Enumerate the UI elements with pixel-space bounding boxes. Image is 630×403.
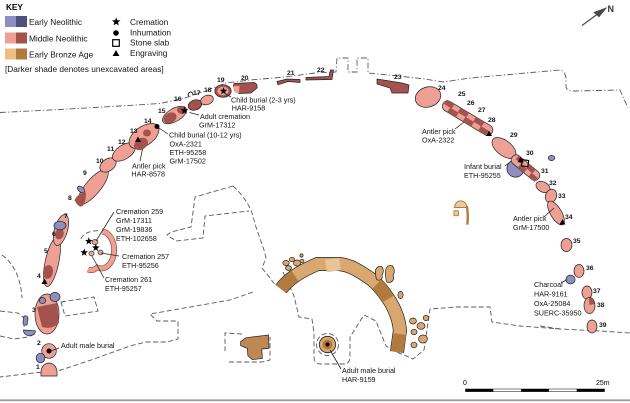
svg-text:Engraving: Engraving — [130, 48, 168, 58]
svg-text:17: 17 — [193, 90, 201, 97]
svg-text:ETH-95258: ETH-95258 — [170, 148, 207, 157]
svg-text:24: 24 — [438, 85, 446, 92]
svg-text:Child burial (10-12 yrs): Child burial (10-12 yrs) — [169, 131, 242, 140]
svg-text:ETH-95256: ETH-95256 — [122, 261, 159, 270]
svg-text:ETH-102658: ETH-102658 — [116, 234, 157, 243]
svg-text:9: 9 — [83, 170, 87, 177]
svg-text:Cremation 257: Cremation 257 — [122, 252, 169, 261]
svg-text:35: 35 — [573, 238, 581, 245]
svg-text:8: 8 — [68, 195, 72, 202]
svg-text:HAR-9161: HAR-9161 — [534, 290, 568, 299]
svg-text:Antler pick: Antler pick — [513, 214, 547, 223]
svg-text:14: 14 — [144, 118, 152, 125]
svg-text:30: 30 — [526, 150, 534, 157]
svg-text:OxA-2321: OxA-2321 — [170, 139, 202, 148]
svg-text:26: 26 — [467, 100, 475, 107]
svg-text:1: 1 — [36, 364, 40, 371]
svg-text:N: N — [608, 4, 615, 14]
svg-text:7: 7 — [64, 213, 68, 220]
svg-text:34: 34 — [565, 214, 573, 221]
svg-text:29: 29 — [510, 132, 518, 139]
svg-text:Cremation 259: Cremation 259 — [116, 207, 163, 216]
svg-text:20: 20 — [241, 75, 249, 82]
svg-text:19: 19 — [217, 77, 225, 84]
svg-text:32: 32 — [549, 180, 557, 187]
svg-text:OxA-25084: OxA-25084 — [534, 299, 570, 308]
svg-text:GrM-17311: GrM-17311 — [116, 216, 152, 225]
svg-text:Inhumation: Inhumation — [130, 28, 171, 38]
svg-text:ETH-95257: ETH-95257 — [105, 284, 142, 293]
svg-text:HAR-8578: HAR-8578 — [131, 170, 165, 179]
svg-text:Early Bronze Age: Early Bronze Age — [29, 50, 93, 60]
svg-text:GrM-19836: GrM-19836 — [116, 225, 152, 234]
svg-text:10: 10 — [96, 158, 104, 165]
svg-text:Cremation: Cremation — [130, 17, 169, 27]
svg-text:27: 27 — [478, 107, 486, 114]
svg-text:18: 18 — [204, 87, 212, 94]
svg-text:36: 36 — [586, 265, 594, 272]
svg-text:Middle Neolithic: Middle Neolithic — [29, 34, 88, 44]
svg-text:0: 0 — [463, 380, 467, 387]
svg-text:HAR-9158: HAR-9158 — [232, 104, 266, 113]
svg-text:Infant burial: Infant burial — [464, 162, 502, 171]
svg-text:OxA-2322: OxA-2322 — [422, 136, 454, 145]
svg-text:25: 25 — [458, 91, 466, 98]
svg-text:13: 13 — [130, 128, 138, 135]
svg-text:39: 39 — [599, 322, 607, 329]
svg-text:16: 16 — [174, 96, 182, 103]
svg-text:Adult male burial: Adult male burial — [61, 341, 115, 350]
svg-text:2: 2 — [37, 340, 41, 347]
svg-text:12: 12 — [118, 139, 126, 146]
svg-text:37: 37 — [593, 288, 601, 295]
svg-text:28: 28 — [488, 117, 496, 124]
svg-text:Early Neolithic: Early Neolithic — [29, 17, 82, 27]
svg-text:5: 5 — [44, 248, 48, 255]
svg-text:3: 3 — [32, 307, 36, 314]
svg-text:Charcoal: Charcoal — [534, 280, 563, 289]
svg-text:Cremation 261: Cremation 261 — [105, 275, 152, 284]
svg-text:25m: 25m — [596, 380, 610, 387]
svg-text:11: 11 — [107, 146, 114, 153]
svg-text:4: 4 — [37, 273, 41, 280]
svg-text:6: 6 — [52, 231, 56, 238]
svg-text:ETH-95255: ETH-95255 — [464, 171, 501, 180]
svg-text:GrM-17502: GrM-17502 — [170, 157, 206, 166]
svg-text:33: 33 — [558, 193, 566, 200]
svg-text:KEY: KEY — [6, 3, 23, 12]
svg-text:22: 22 — [317, 67, 325, 74]
svg-text:Adult male burial: Adult male burial — [342, 366, 396, 375]
svg-text:31: 31 — [541, 168, 549, 175]
svg-text:[Darker shade denotes unexcava: [Darker shade denotes unexcavated areas] — [5, 64, 164, 74]
svg-text:15: 15 — [158, 108, 166, 115]
svg-text:HAR-9159: HAR-9159 — [342, 375, 376, 384]
svg-text:23: 23 — [394, 74, 402, 81]
svg-text:Stone slab: Stone slab — [130, 38, 170, 48]
svg-text:38: 38 — [597, 302, 605, 309]
svg-text:21: 21 — [287, 70, 295, 77]
svg-text:GrM-17312: GrM-17312 — [199, 121, 235, 130]
svg-text:GrM-17500: GrM-17500 — [513, 223, 549, 232]
svg-text:SUERC-35950: SUERC-35950 — [534, 309, 582, 318]
